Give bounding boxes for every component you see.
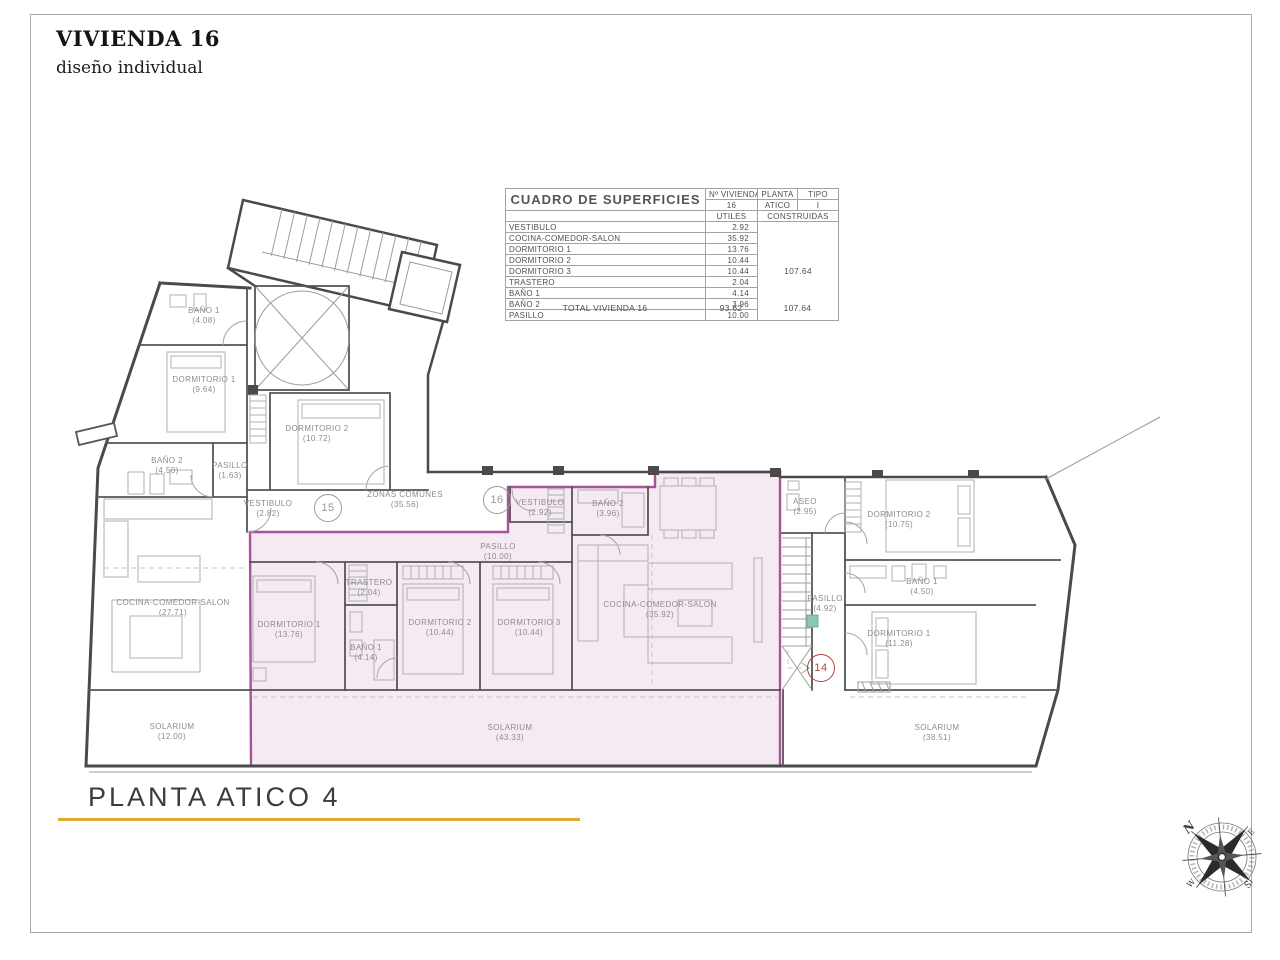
room-area: (38.51) <box>915 733 960 743</box>
room-name: DORMITORIO 1 <box>257 620 320 630</box>
room-label: DORMITORIO 2(10.72) <box>285 424 348 444</box>
room-area: (2.04) <box>346 588 393 598</box>
row-label: COCINA-COMEDOR-SALON <box>506 233 706 244</box>
room-label: DORMITORIO 2(10.44) <box>408 618 471 638</box>
room-label: BAÑO 1(4.14) <box>350 643 382 663</box>
room-label: DORMITORIO 1(11.28) <box>867 629 930 649</box>
tipo-value: I <box>798 200 839 211</box>
room-label: PASILLO(1.63) <box>212 461 248 481</box>
room-name: BAÑO 1 <box>188 306 220 316</box>
row-utiles: 4.14 <box>706 288 758 299</box>
row-label: DORMITORIO 2 <box>506 255 706 266</box>
room-name: COCINA-COMEDOR-SALON <box>116 598 229 608</box>
room-area: (3.96) <box>592 509 624 519</box>
room-name: DORMITORIO 1 <box>172 375 235 385</box>
room-area: (10.00) <box>480 552 516 562</box>
room-area: (10.72) <box>285 434 348 444</box>
row-utiles: 10.44 <box>706 266 758 277</box>
surfaces-table: CUADRO DE SUPERFICIES Nº VIVIENDA PLANTA… <box>505 188 839 321</box>
floor-title: PLANTA ATICO 4 <box>88 782 341 813</box>
row-utiles: 13.76 <box>706 244 758 255</box>
row-utiles: 2.04 <box>706 277 758 288</box>
unit-badge-16: 16 <box>483 486 511 514</box>
unit-badge-14: 14 <box>807 654 835 682</box>
room-label: TRASTERO(2.04) <box>346 578 393 598</box>
planta-value: ATICO <box>758 200 798 211</box>
room-area: (10.75) <box>867 520 930 530</box>
empty-cell <box>506 211 706 222</box>
room-area: (10.44) <box>408 628 471 638</box>
room-label: DORMITORIO 2(10.75) <box>867 510 930 530</box>
room-label: SOLARIUM(12.00) <box>150 722 195 742</box>
room-label: COCINA-COMEDOR-SALON(35.92) <box>603 600 716 620</box>
room-area: (11.28) <box>867 639 930 649</box>
room-name: TRASTERO <box>346 578 393 588</box>
room-area: (4.50) <box>151 466 183 476</box>
room-area: (4.50) <box>906 587 938 597</box>
room-area: (35.56) <box>367 500 443 510</box>
room-name: VESTIBULO <box>244 499 293 509</box>
total-utiles: 93.62 <box>705 303 757 313</box>
room-name: PASILLO <box>212 461 248 471</box>
room-name: ZONAS COMUNES <box>367 490 443 500</box>
unit-badge-15: 15 <box>314 494 342 522</box>
table-title: CUADRO DE SUPERFICIES <box>506 189 706 211</box>
room-label: VESTIBULO(2.82) <box>244 499 293 519</box>
room-area: (2.82) <box>244 509 293 519</box>
room-label: COCINA-COMEDOR-SALON(27.71) <box>116 598 229 618</box>
col-header-planta: PLANTA <box>758 189 798 200</box>
compass-rose: N E S W <box>1166 801 1279 914</box>
room-area: (2.92) <box>516 508 565 518</box>
row-label: TRASTERO <box>506 277 706 288</box>
room-label: ASEO(2.95) <box>793 497 817 517</box>
floor-plan-drawing: N E S W <box>0 0 1280 960</box>
room-area: (10.44) <box>497 628 560 638</box>
vivienda-number: 16 <box>706 200 758 211</box>
row-label: DORMITORIO 1 <box>506 244 706 255</box>
room-name: DORMITORIO 3 <box>497 618 560 628</box>
room-name: COCINA-COMEDOR-SALON <box>603 600 716 610</box>
room-label: BAÑO 1(4.50) <box>906 577 938 597</box>
room-label: DORMITORIO 1(13.76) <box>257 620 320 640</box>
room-name: SOLARIUM <box>488 723 533 733</box>
row-label: DORMITORIO 3 <box>506 266 706 277</box>
room-label: BAÑO 1(4.08) <box>188 306 220 326</box>
accent-underline <box>58 818 580 821</box>
room-label: SOLARIUM(38.51) <box>915 723 960 743</box>
room-name: PASILLO <box>480 542 516 552</box>
room-name: BAÑO 2 <box>151 456 183 466</box>
room-area: (13.76) <box>257 630 320 640</box>
room-name: SOLARIUM <box>915 723 960 733</box>
col-header-vivienda: Nº VIVIENDA <box>706 189 758 200</box>
room-label: VESTIBULO(2.92) <box>516 498 565 518</box>
room-label: DORMITORIO 3(10.44) <box>497 618 560 638</box>
row-utiles: 10.44 <box>706 255 758 266</box>
room-name: BAÑO 1 <box>906 577 938 587</box>
room-area: (35.92) <box>603 610 716 620</box>
total-label: TOTAL VIVIENDA 16 <box>505 303 705 313</box>
room-label: BAÑO 2(4.50) <box>151 456 183 476</box>
row-label: BAÑO 1 <box>506 288 706 299</box>
col-header-utiles: UTILES <box>706 211 758 222</box>
col-header-tipo: TIPO <box>798 189 839 200</box>
room-area: (4.14) <box>350 653 382 663</box>
row-utiles: 35.92 <box>706 233 758 244</box>
room-name: DORMITORIO 1 <box>867 629 930 639</box>
room-label: DORMITORIO 1(9.64) <box>172 375 235 395</box>
row-label: VESTIBULO <box>506 222 706 233</box>
room-label: SOLARIUM(43.33) <box>488 723 533 743</box>
room-label: BAÑO 2(3.96) <box>592 499 624 519</box>
svg-text:E: E <box>1246 827 1257 838</box>
table-total-row: TOTAL VIVIENDA 16 93.62 107.64 <box>505 303 838 313</box>
room-area: (4.08) <box>188 316 220 326</box>
room-name: BAÑO 2 <box>592 499 624 509</box>
room-area: (1.63) <box>212 471 248 481</box>
room-name: DORMITORIO 2 <box>408 618 471 628</box>
table-row: VESTIBULO 2.92 107.64 <box>506 222 839 233</box>
row-utiles: 2.92 <box>706 222 758 233</box>
room-name: PASILLO <box>807 594 843 604</box>
room-area: (27.71) <box>116 608 229 618</box>
room-name: DORMITORIO 2 <box>867 510 930 520</box>
room-label: PASILLO(10.00) <box>480 542 516 562</box>
room-name: ASEO <box>793 497 817 507</box>
col-header-construidas: CONSTRUIDAS <box>758 211 839 222</box>
compass-north-label: N <box>1180 818 1199 837</box>
plan-sheet: VIVIENDA 16 diseño individual <box>0 0 1280 960</box>
room-area: (12.00) <box>150 732 195 742</box>
room-label: PASILLO(4.92) <box>807 594 843 614</box>
room-area: (43.33) <box>488 733 533 743</box>
room-name: BAÑO 1 <box>350 643 382 653</box>
room-area: (9.64) <box>172 385 235 395</box>
room-name: SOLARIUM <box>150 722 195 732</box>
room-name: DORMITORIO 2 <box>285 424 348 434</box>
total-construidas: 107.64 <box>757 303 838 313</box>
room-area: (2.95) <box>793 507 817 517</box>
room-name: VESTIBULO <box>516 498 565 508</box>
svg-text:S: S <box>1243 880 1254 891</box>
room-label: ZONAS COMUNES(35.56) <box>367 490 443 510</box>
room-area: (4.92) <box>807 604 843 614</box>
